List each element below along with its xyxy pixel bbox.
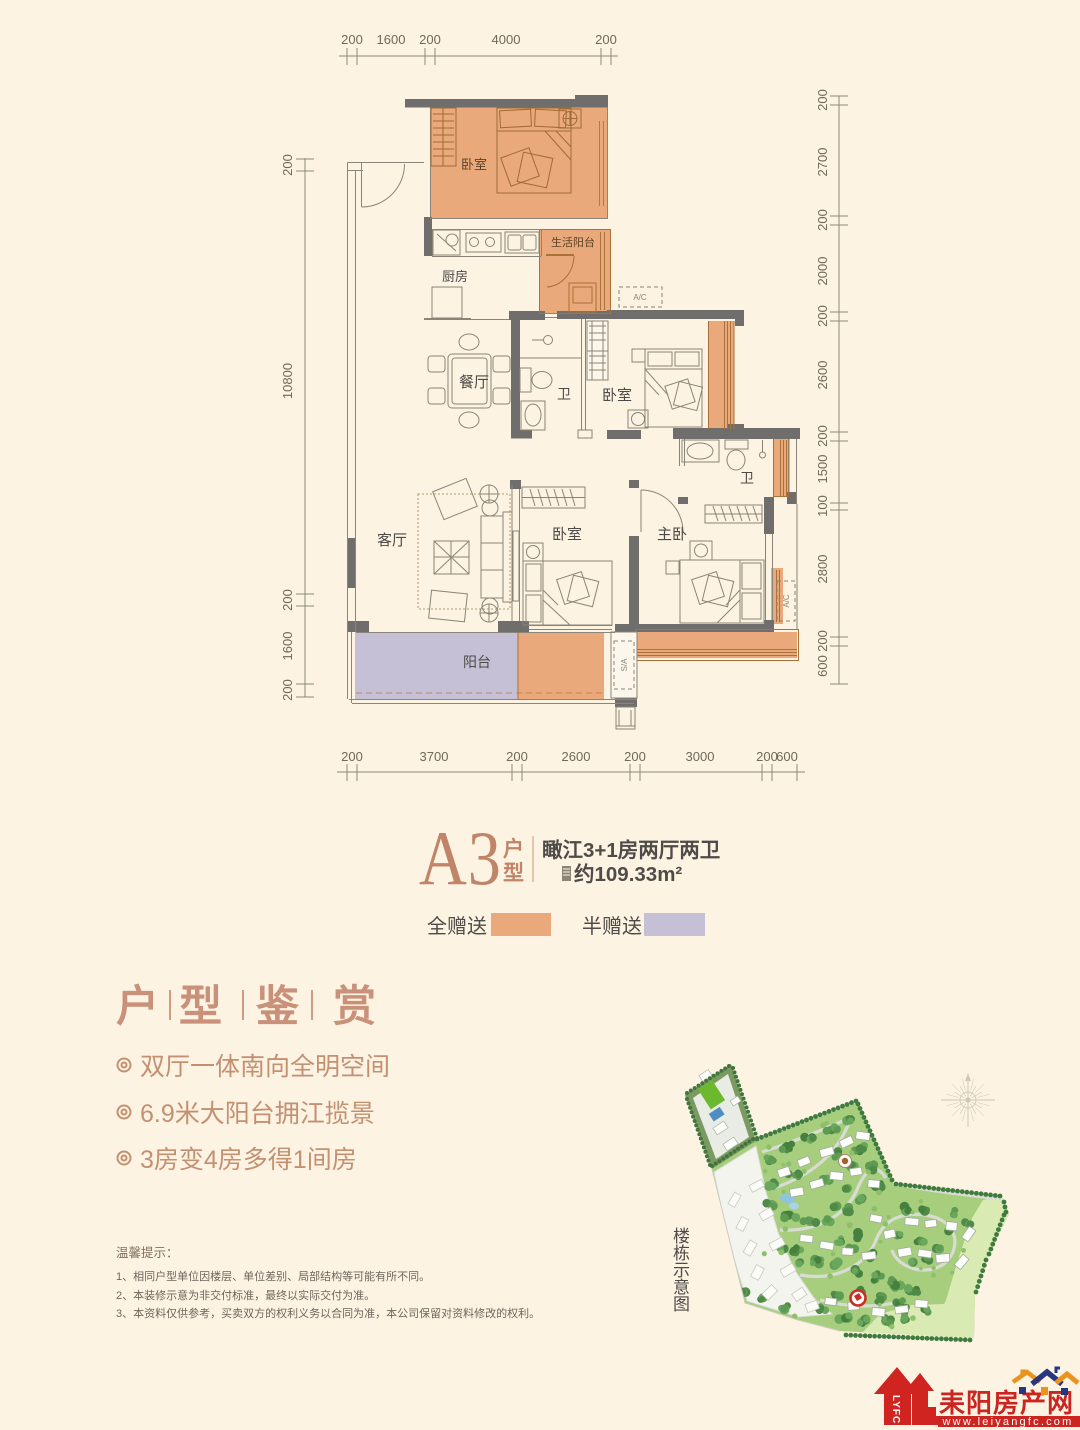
svg-text:约109.33m²: 约109.33m² [574, 862, 682, 886]
svg-text:A/C: A/C [782, 594, 791, 608]
svg-text:200: 200 [506, 749, 528, 764]
svg-text:卧室: 卧室 [552, 526, 582, 543]
svg-text:200: 200 [815, 630, 830, 652]
svg-text:200: 200 [815, 305, 830, 327]
svg-text:双厅一体南向全明空间: 双厅一体南向全明空间 [140, 1053, 390, 1081]
svg-text:赏: 赏 [333, 983, 376, 1031]
svg-text:卧室: 卧室 [461, 157, 487, 172]
svg-text:鉴: 鉴 [256, 983, 300, 1031]
svg-text:2600: 2600 [815, 361, 830, 390]
svg-text:户: 户 [503, 837, 524, 861]
svg-text:3房变4房多得1间房: 3房变4房多得1间房 [140, 1146, 357, 1174]
svg-text:S/A: S/A [620, 658, 629, 672]
svg-text:200: 200 [419, 32, 441, 47]
svg-text:卫: 卫 [557, 386, 571, 402]
svg-text:户: 户 [116, 983, 159, 1031]
svg-text:型: 型 [503, 862, 524, 885]
svg-text:1600: 1600 [280, 632, 295, 661]
svg-text:200: 200 [280, 589, 295, 611]
svg-text:200: 200 [815, 209, 830, 231]
svg-text:卫: 卫 [740, 470, 754, 486]
svg-text:600: 600 [815, 655, 830, 677]
svg-text:全赠送: 全赠送 [427, 915, 487, 938]
svg-text:200: 200 [280, 679, 295, 701]
svg-text:200: 200 [341, 749, 363, 764]
svg-text:温馨提示：: 温馨提示： [116, 1245, 179, 1260]
svg-text:3700: 3700 [420, 749, 449, 764]
svg-text:6.9米大阳台拥江揽景: 6.9米大阳台拥江揽景 [140, 1100, 375, 1128]
svg-text:主卧: 主卧 [657, 526, 687, 543]
svg-text:200: 200 [815, 425, 830, 447]
svg-text:A3: A3 [419, 815, 502, 901]
svg-text:3000: 3000 [686, 749, 715, 764]
svg-text:200: 200 [595, 32, 617, 47]
svg-text:2000: 2000 [815, 257, 830, 286]
svg-text:1500: 1500 [815, 455, 830, 484]
svg-text:200: 200 [341, 32, 363, 47]
svg-text:200: 200 [756, 749, 778, 764]
svg-text:厨房: 厨房 [442, 269, 468, 284]
svg-text:型: 型 [179, 983, 222, 1031]
svg-text:卧室: 卧室 [602, 387, 632, 404]
svg-text:200: 200 [280, 154, 295, 176]
svg-text:生活阳台: 生活阳台 [551, 235, 595, 249]
svg-text:2700: 2700 [815, 148, 830, 177]
svg-text:餐厅: 餐厅 [459, 374, 489, 391]
svg-text:2800: 2800 [815, 555, 830, 584]
svg-text:图: 图 [673, 1295, 690, 1314]
svg-text:3、本资料仅供参考，买卖双方的权利义务以合同为准，本公司保留: 3、本资料仅供参考，买卖双方的权利义务以合同为准，本公司保留对资料修改的权利。 [116, 1306, 540, 1320]
svg-text:4000: 4000 [492, 32, 521, 47]
svg-text:2600: 2600 [562, 749, 591, 764]
svg-text:客厅: 客厅 [377, 532, 407, 549]
svg-text:2、本装修示意为非交付标准，最终以实际交付为准。: 2、本装修示意为非交付标准，最终以实际交付为准。 [116, 1288, 375, 1302]
svg-text:10800: 10800 [280, 363, 295, 399]
svg-text:LYFC: LYFC [890, 1395, 901, 1424]
svg-text:半赠送: 半赠送 [582, 915, 642, 938]
svg-text:200: 200 [815, 89, 830, 111]
svg-text:1600: 1600 [377, 32, 406, 47]
svg-text:1、相同户型单位因楼层、单位差别、局部结构等可能有所不同。: 1、相同户型单位因楼层、单位差别、局部结构等可能有所不同。 [116, 1269, 430, 1283]
svg-text:耒阳房产网: 耒阳房产网 [939, 1388, 1074, 1418]
svg-text:100: 100 [815, 495, 830, 517]
svg-text:600: 600 [776, 749, 798, 764]
svg-text:瞰江3+1房两厅两卫: 瞰江3+1房两厅两卫 [542, 838, 720, 862]
svg-text:200: 200 [624, 749, 646, 764]
svg-text:阳台: 阳台 [463, 654, 491, 670]
svg-text:A/C: A/C [633, 293, 647, 302]
svg-text:www.leiyangfc.com: www.leiyangfc.com [942, 1416, 1074, 1428]
